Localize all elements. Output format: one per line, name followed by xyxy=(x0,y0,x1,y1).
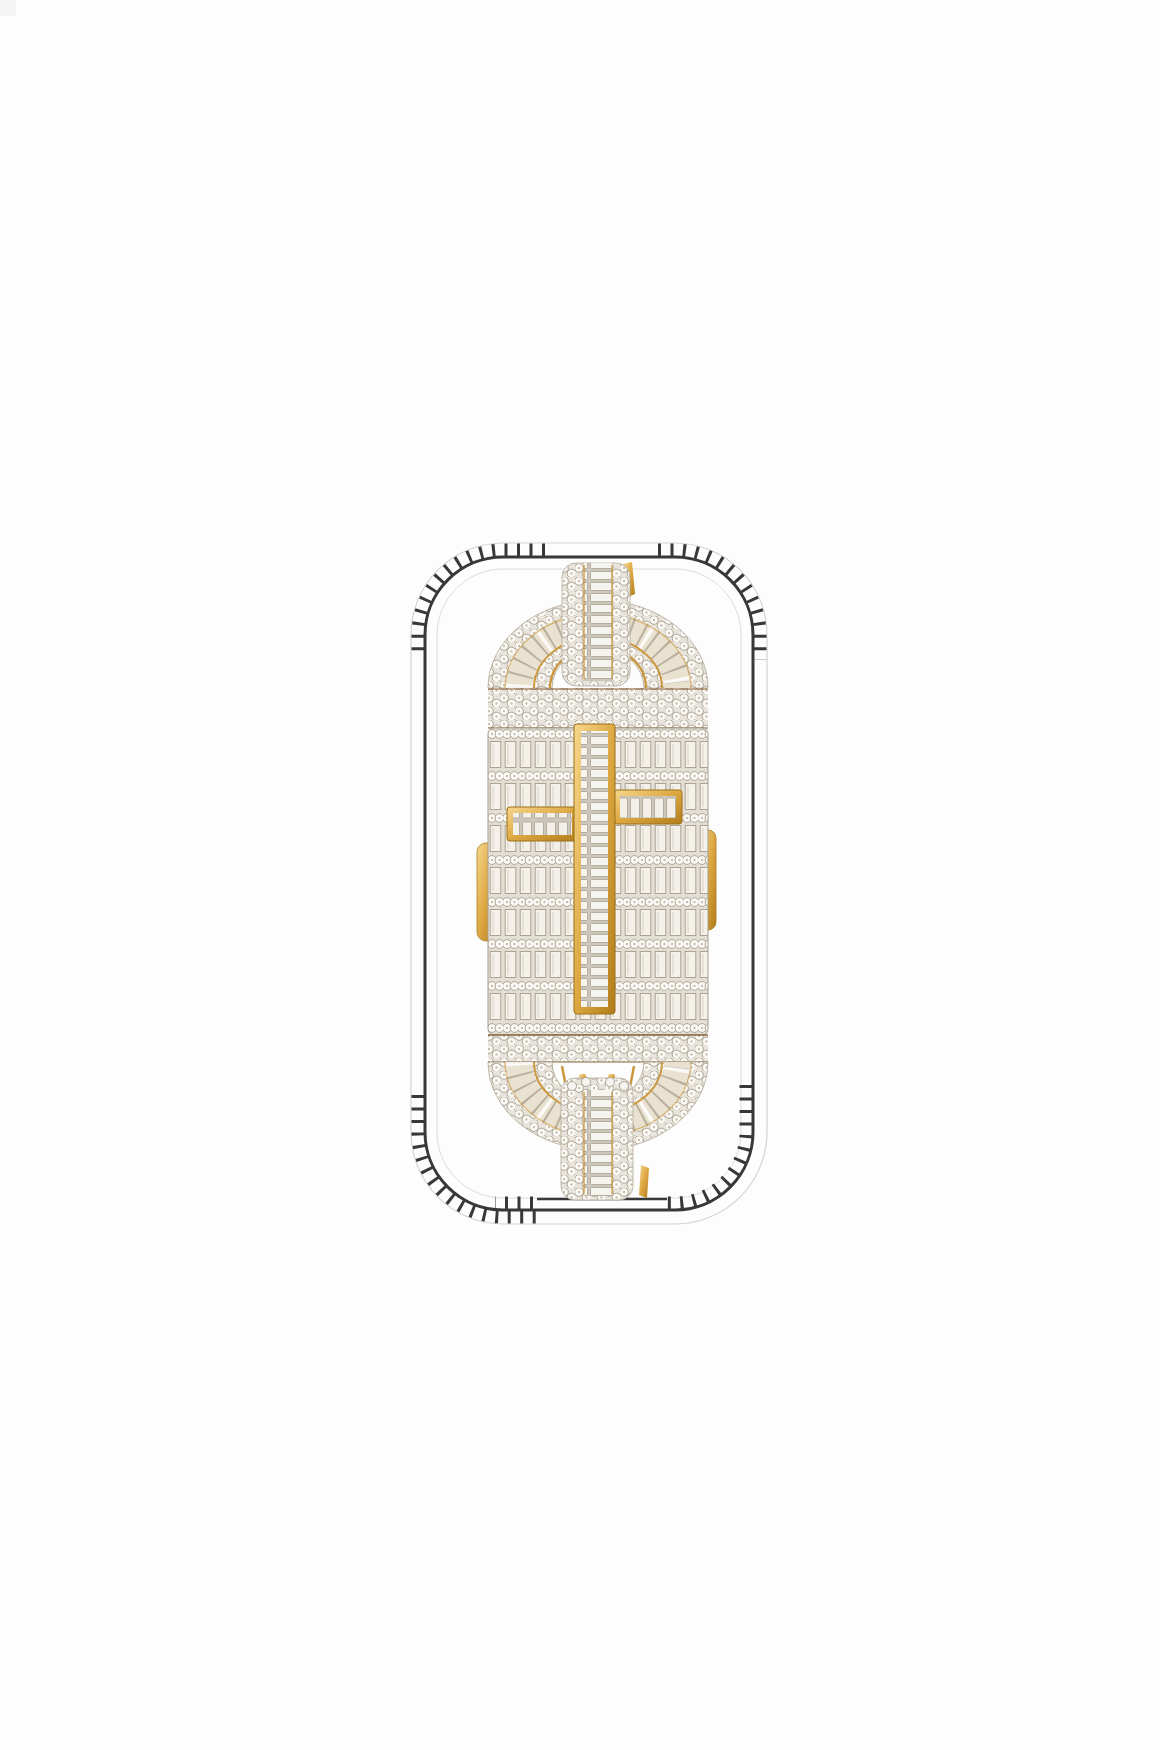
product-photo xyxy=(365,460,805,1250)
bottom-link-baguette-column xyxy=(584,1090,612,1196)
bottom-link-prong-stone-4 xyxy=(620,1082,629,1091)
top-chain-link xyxy=(562,562,635,686)
bottom-link-prong-stone-3 xyxy=(606,1078,615,1087)
bottom-link-prong-stone-2 xyxy=(582,1078,591,1087)
cross-vertical-baguettes xyxy=(581,731,608,1007)
pendant xyxy=(477,562,716,1200)
lower-band-pave xyxy=(488,1035,708,1062)
bottom-gold-bail xyxy=(639,1165,649,1198)
lower-pave-band xyxy=(488,1035,708,1062)
corner-artifact xyxy=(0,0,16,16)
upper-band-pave xyxy=(488,688,708,728)
upper-pave-band xyxy=(488,688,708,728)
top-link-baguette-column xyxy=(584,563,612,681)
cross-arm-left-baguettes xyxy=(513,813,572,835)
cross-arm-right-baguettes xyxy=(620,796,676,818)
bottom-link-prong-stone-1 xyxy=(568,1082,577,1091)
